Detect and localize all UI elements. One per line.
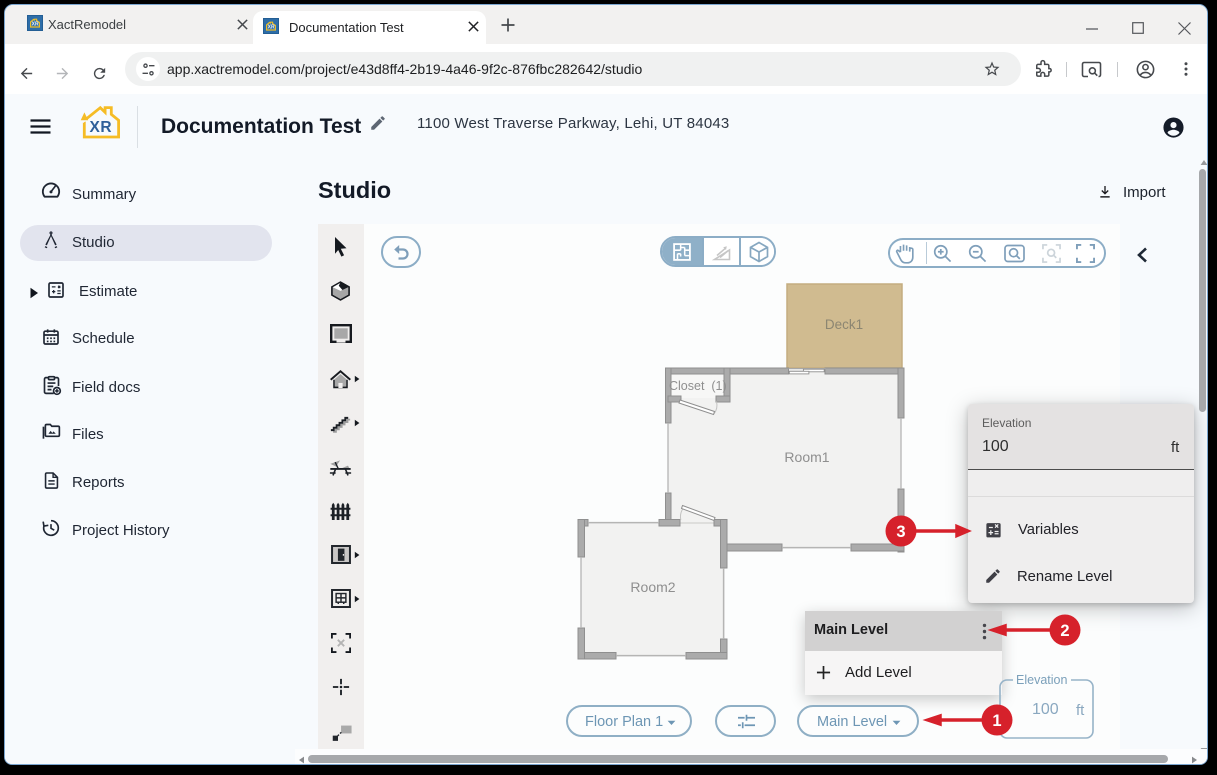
svg-text:Room2: Room2 xyxy=(630,579,675,595)
svg-text:1: 1 xyxy=(992,712,1001,730)
svg-text:Room1: Room1 xyxy=(784,449,829,465)
svg-text:Deck1: Deck1 xyxy=(825,317,863,332)
svg-text:2: 2 xyxy=(1060,622,1069,640)
svg-text:XR: XR xyxy=(268,25,275,31)
svg-text:3: 3 xyxy=(896,523,905,541)
svg-text:Closet (1): Closet (1) xyxy=(669,379,727,393)
svg-text:XR: XR xyxy=(90,119,113,136)
svg-text:XR: XR xyxy=(32,22,39,28)
